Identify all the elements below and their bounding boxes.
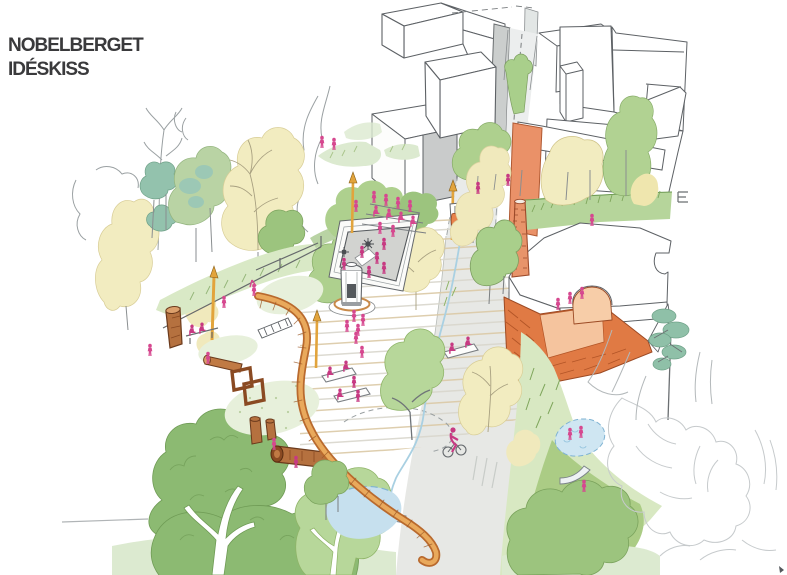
svg-text:NOBELBERGET: NOBELBERGET — [8, 35, 144, 56]
svg-text:IDÉSKISS: IDÉSKISS — [8, 58, 89, 80]
